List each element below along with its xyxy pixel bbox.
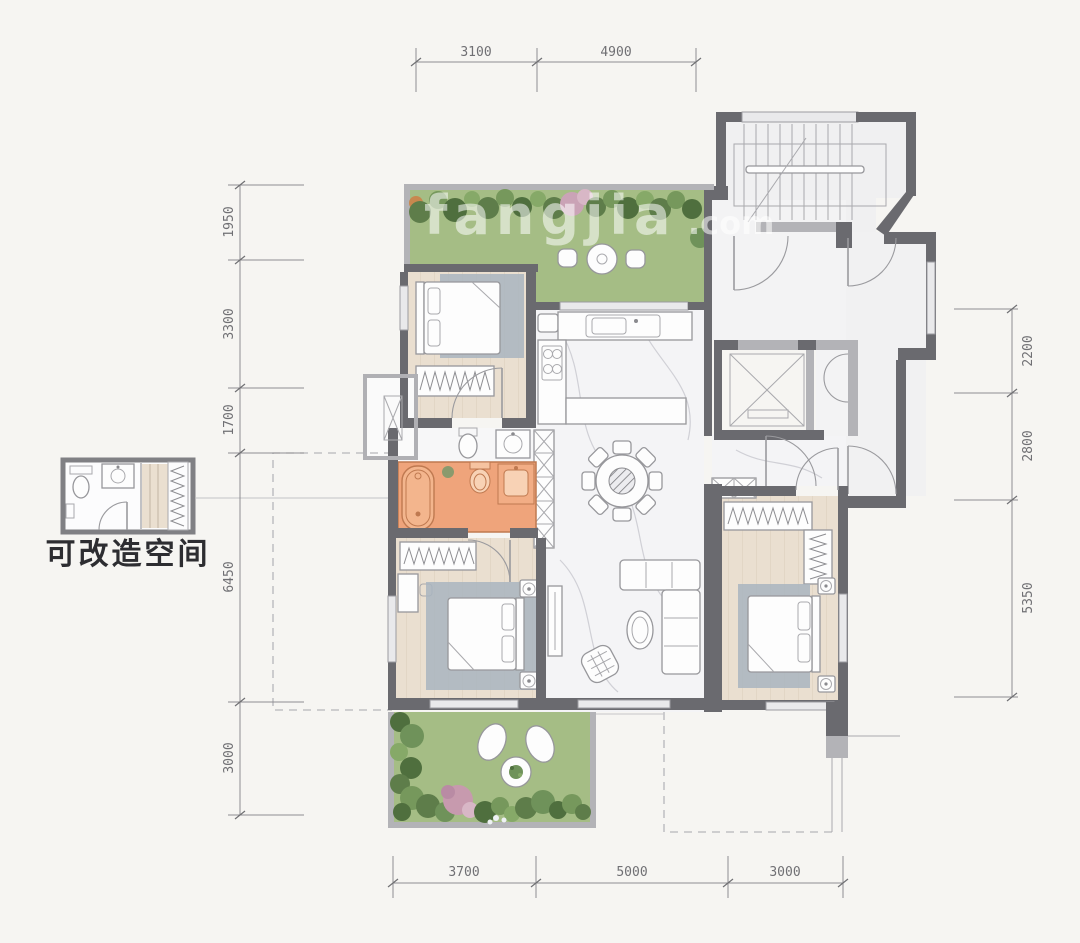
dim-left-0: 1950: [222, 206, 237, 237]
watermark-tld: .com: [688, 204, 774, 242]
kitchen-counter: [558, 312, 692, 340]
dim-right-2: 5350: [1021, 582, 1036, 613]
bed-icon: [416, 282, 500, 354]
dim-right-1: 2800: [1021, 430, 1036, 461]
wardrobe-icon: [400, 542, 476, 570]
living-window: [578, 700, 670, 708]
lobby-window: [927, 262, 935, 334]
floorplan-svg: fangjia .com 可改造空间 3100 4900: [0, 0, 1080, 943]
chamfer-wall: [876, 192, 916, 236]
bedroom2-window-south: [766, 702, 834, 710]
stair-handrail: [746, 166, 864, 173]
dim-top-0: 3100: [460, 45, 491, 60]
bathroom-highlight: [398, 462, 536, 532]
stair-window: [742, 112, 858, 122]
bathtub-icon: [402, 466, 434, 530]
bedroom1-window: [400, 286, 408, 330]
dimension-right: 2200 2800 5350: [954, 305, 1036, 701]
dim-bottom-0: 3700: [448, 865, 479, 880]
dining-table-icon: [582, 441, 662, 521]
dim-bottom-2: 3000: [769, 865, 800, 880]
bed-icon: [748, 596, 820, 672]
dim-right-0: 2200: [1021, 335, 1036, 366]
floor-plan-image: fangjia .com 可改造空间 3100 4900: [0, 0, 1080, 943]
inset-label: 可改造空间: [46, 538, 211, 571]
master-window: [388, 596, 396, 662]
inset-plan: 可改造空间: [46, 460, 211, 571]
bed-icon: [448, 598, 524, 670]
garden-table-icon: [501, 757, 531, 787]
dimension-left: 1950 3300 1700 6450 3000: [222, 181, 304, 819]
dim-left-4: 3000: [222, 742, 237, 773]
toilet-icon: [459, 434, 477, 458]
dim-left-3: 6450: [222, 561, 237, 592]
fridge-icon: [538, 314, 558, 332]
balcony-outline: [596, 702, 900, 832]
watermark-text: fangjia: [424, 184, 677, 247]
wardrobe-icon: [416, 366, 494, 396]
dimension-top: 3100 4900: [411, 45, 701, 92]
dimension-bottom: 3700 5000 3000: [388, 856, 848, 898]
kitchen-window: [560, 302, 688, 310]
callout-dashed-box: [273, 453, 392, 710]
dim-left-2: 1700: [222, 404, 237, 435]
dim-left-1: 3300: [222, 308, 237, 339]
dim-bottom-1: 5000: [616, 865, 647, 880]
inset-closet: [142, 464, 168, 528]
dresser-icon: [398, 574, 418, 612]
dim-top-1: 4900: [600, 45, 631, 60]
island-counter: [566, 398, 686, 424]
master-window-south: [430, 700, 518, 708]
bath-plant-icon: [442, 466, 454, 478]
bath-toilet-icon: [470, 462, 490, 493]
elevator-icon: [730, 354, 804, 426]
bedroom2-window-east: [839, 594, 847, 662]
vanity-sink-icon: [498, 464, 534, 504]
